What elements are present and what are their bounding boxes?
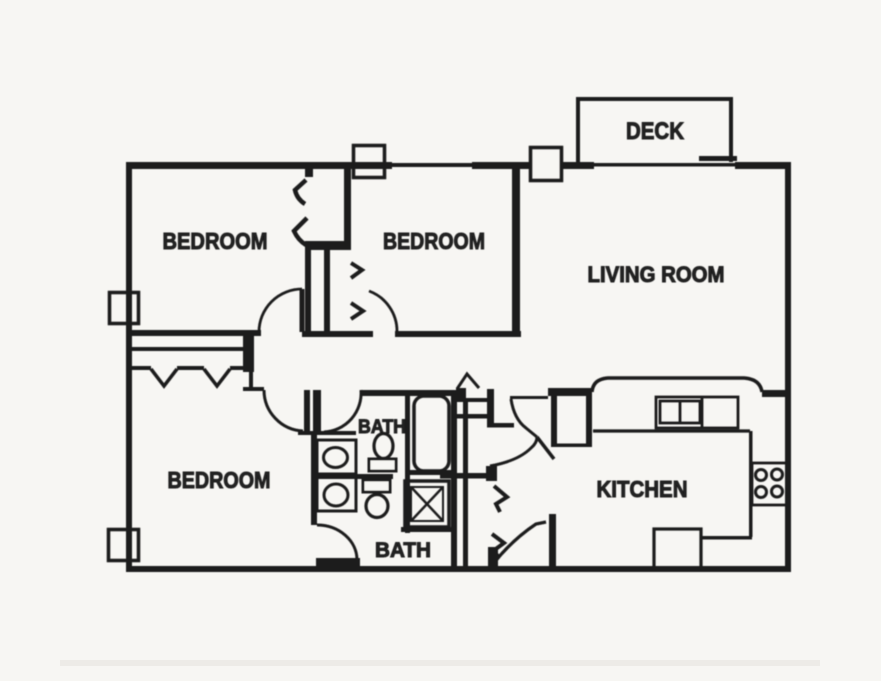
svg-text:BEDROOM: BEDROOM <box>383 228 485 254</box>
svg-text:LIVING ROOM: LIVING ROOM <box>588 262 725 287</box>
svg-text:KITCHEN: KITCHEN <box>597 476 688 502</box>
svg-text:BEDROOM: BEDROOM <box>168 467 271 493</box>
svg-text:BATH: BATH <box>375 539 431 562</box>
svg-text:DECK: DECK <box>626 118 685 145</box>
svg-text:BEDROOM: BEDROOM <box>163 228 268 254</box>
